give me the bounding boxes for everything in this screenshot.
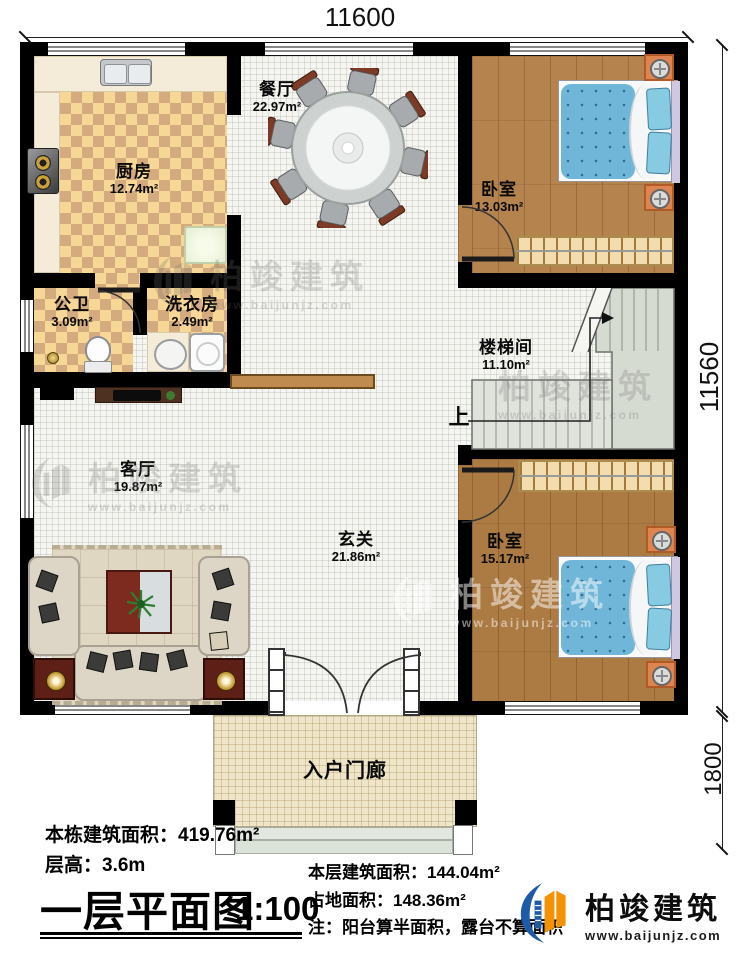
sink-basin-right (128, 64, 151, 84)
table-lamp (46, 671, 66, 691)
stat-floor-area: 本层建筑面积：144.04m² (308, 858, 500, 883)
wall-pier (40, 388, 74, 400)
label-living: 客厅 19.87m² (98, 460, 178, 494)
table-lamp (216, 671, 236, 691)
window-top-bedroom (510, 42, 645, 56)
sofa-pillow (209, 631, 229, 651)
side-table-right (203, 658, 245, 700)
title-underline (40, 932, 302, 939)
nightstand (646, 526, 676, 553)
room-name: 卧室 (459, 180, 539, 200)
window-top-dining (265, 42, 413, 56)
label-stairwell: 楼梯间 11.10m² (466, 338, 546, 372)
toilet-tank (84, 361, 112, 373)
room-area: 13.03m² (459, 200, 539, 215)
room-area: 21.86m² (316, 550, 396, 565)
bed-pillow (646, 87, 672, 130)
washer-drum (196, 342, 220, 366)
stat-floor-height: 层高：3.6m (45, 850, 145, 877)
brand-logo-block: 柏竣建筑 www.baijunjz.com (515, 882, 721, 944)
stat-building-total-area: 本栋建筑面积：419.76m² (45, 820, 259, 847)
st at-label: 注： (308, 918, 342, 937)
label-bathroom: 公卫 3.09m² (32, 295, 112, 329)
room-name: 洗衣房 (152, 295, 232, 315)
bed-pillow (646, 607, 672, 650)
stat-label: 本层建筑面积： (308, 863, 427, 882)
sofa-pillow (139, 652, 159, 672)
sofa-pillow (166, 649, 188, 671)
wall-bedroom-top-left-lower (458, 262, 472, 273)
bed-headboard (671, 557, 680, 659)
toilet-bowl (85, 336, 111, 364)
sofa-pillow (113, 650, 134, 671)
label-bedroom-bottom: 卧室 15.17m² (465, 532, 545, 566)
room-name: 玄关 (316, 530, 396, 550)
wall-kitchen-right-lower (227, 215, 241, 273)
tv-console (95, 387, 182, 403)
entry-door-jamb-left (268, 648, 285, 716)
stat-value: 419.76m² (178, 825, 259, 846)
sofa-right (198, 556, 250, 656)
room-area: 12.74m² (94, 182, 174, 197)
dimension-side: 11560 (694, 312, 725, 442)
label-foyer: 玄关 21.86m² (316, 530, 396, 564)
kitchen-stove (27, 148, 59, 194)
sofa-pillow (86, 651, 108, 673)
stat-label: 层高： (45, 855, 102, 876)
stat-label: 本栋建筑面积： (45, 825, 178, 846)
room-name: 公卫 (32, 295, 112, 315)
wardrobe-bedroom-top (515, 236, 674, 266)
porch-step-2 (235, 840, 453, 854)
plan-title: 一层平面图 (40, 878, 255, 939)
sofa-left (28, 556, 80, 656)
bed-mattress (561, 560, 635, 655)
porch-step-1 (235, 827, 453, 840)
nightstand (644, 54, 674, 81)
nightstand (646, 661, 676, 688)
bed-mattress (561, 84, 635, 179)
label-bedroom-top: 卧室 13.03m² (459, 180, 539, 214)
sink-basin-left (104, 64, 127, 84)
table-plant (125, 588, 157, 620)
dimension-line-top (25, 37, 688, 38)
porch-column-right (455, 800, 477, 825)
label-kitchen: 厨房 12.74m² (94, 162, 174, 196)
label-dining: 餐厅 22.97m² (237, 80, 317, 114)
room-name: 入户门廊 (285, 760, 405, 783)
wall-bath-laundry-partition (133, 288, 147, 335)
kitchen-sink (100, 59, 152, 86)
wall-kitchen-bottom-left (20, 273, 95, 288)
room-name: 餐厅 (237, 80, 317, 100)
nightstand (644, 184, 674, 211)
burner-2 (35, 174, 51, 190)
wood-cabinet-bar (230, 374, 375, 389)
room-name: 厨房 (94, 162, 174, 182)
laundry-counter (147, 332, 189, 372)
window-top-kitchen (48, 42, 185, 56)
entry-door-opening (270, 701, 420, 715)
window-left-living (20, 425, 34, 518)
sofa-pillow (38, 602, 59, 623)
refrigerator (184, 226, 227, 264)
bedroom-bottom-door-threshold (458, 465, 472, 520)
room-name: 客厅 (98, 460, 178, 480)
coffee-table (106, 570, 172, 634)
brand-logo-icon (515, 882, 579, 944)
room-area: 11.10m² (466, 358, 546, 373)
room-name: 卧室 (465, 532, 545, 552)
stat-value: 148.36m² (393, 891, 466, 910)
side-table-left (33, 658, 75, 700)
stairs-up-label: 上 (444, 406, 474, 430)
brand-name: 柏竣建筑 (585, 884, 721, 928)
console-plant (166, 391, 175, 400)
sofa-pillow (35, 569, 58, 592)
room-area: 3.09m² (32, 315, 112, 330)
burner-1 (35, 155, 51, 171)
nightstand-lamp (652, 531, 672, 551)
tv-screen (113, 390, 161, 401)
room-area: 19.87m² (98, 480, 178, 495)
room-name: 楼梯间 (466, 338, 546, 358)
window-bottom-bedroom (505, 701, 640, 715)
porch-step-rail-right (453, 825, 473, 855)
stat-label: 占地面积： (308, 891, 393, 910)
stat-value: 144.04m² (427, 863, 500, 882)
nightstand-lamp (650, 189, 670, 209)
dimension-top: 11600 (295, 2, 425, 33)
wardrobe-bedroom-bottom (518, 460, 674, 492)
bed-bottom (558, 556, 678, 658)
nightstand-lamp (650, 59, 670, 79)
bed-top (558, 80, 678, 182)
dimension-porch: 1800 (700, 716, 728, 822)
nightstand-lamp (652, 666, 672, 686)
wall-bedroom-top-bottom (458, 273, 688, 288)
room-area: 22.97m² (237, 100, 317, 115)
brand-website: www.baijunjz.com (585, 928, 721, 943)
stat-value: 3.6m (102, 855, 145, 876)
stat-footprint-area: 占地面积：148.36m² (308, 886, 466, 911)
wall-kitchen-bottom-right (140, 273, 241, 288)
label-laundry: 洗衣房 2.49m² (152, 295, 232, 329)
sofa-long (74, 645, 208, 701)
washing-machine (189, 333, 225, 372)
sofa-pillow (212, 568, 235, 591)
bed-headboard (671, 81, 680, 183)
room-area: 15.17m² (465, 552, 545, 567)
bed-pillow (646, 131, 672, 174)
laundry-sink (154, 339, 187, 370)
wall-bath-bottom (20, 372, 241, 388)
bathroom-door-threshold (95, 273, 140, 288)
label-porch: 入户门廊 (285, 760, 405, 783)
room-area: 2.49m² (152, 315, 232, 330)
toilet-brush (47, 352, 59, 364)
bed-pillow (646, 563, 672, 606)
floor-plan-canvas: 餐厅 22.97m² 厨房 12.74m² 卧室 13.03m² 公卫 3.09… (0, 0, 750, 953)
plan-scale: 1:100 (235, 890, 319, 928)
sofa-pillow (211, 601, 232, 622)
entry-door-jamb-right (403, 648, 420, 716)
